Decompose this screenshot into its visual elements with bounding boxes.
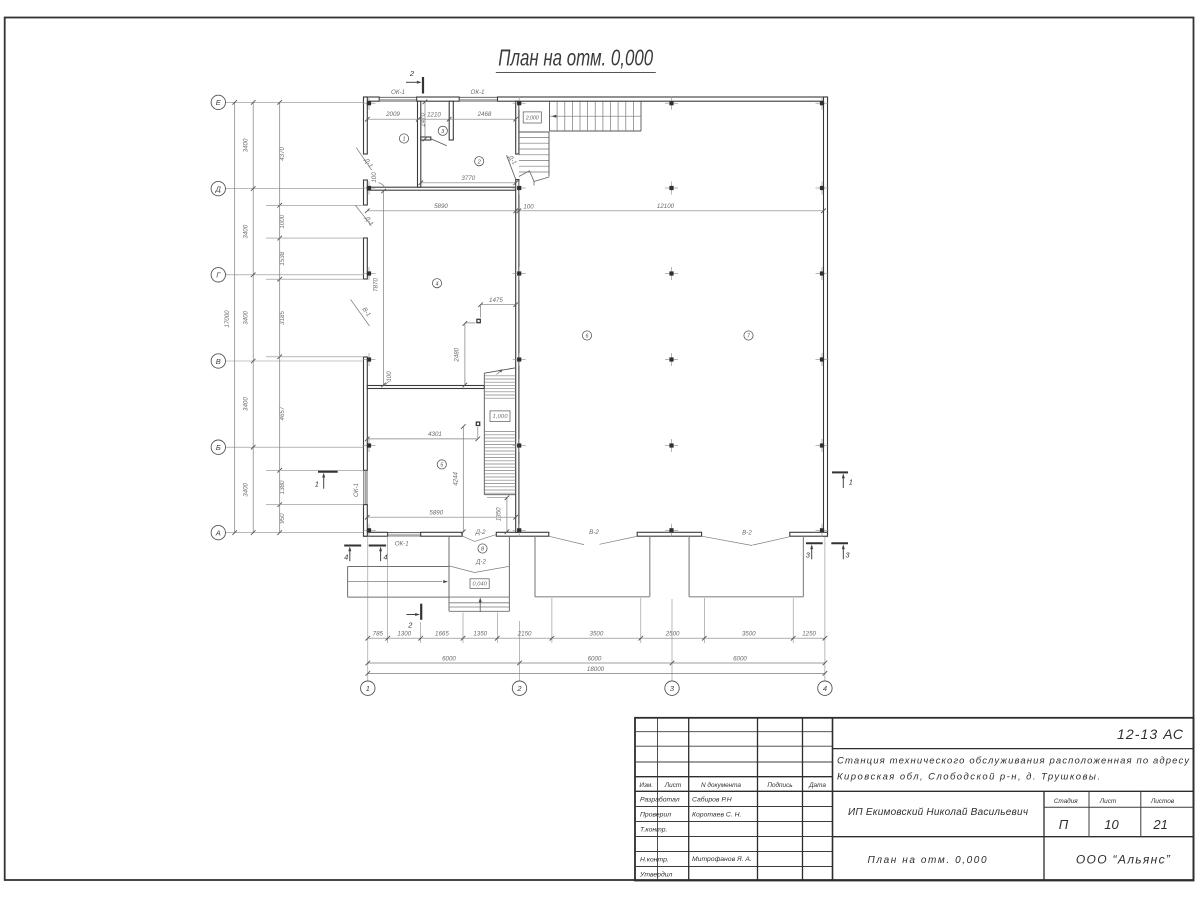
svg-text:1665: 1665 xyxy=(435,631,449,638)
svg-text:В-2: В-2 xyxy=(742,530,752,537)
svg-text:ОК-1: ОК-1 xyxy=(353,483,360,497)
svg-text:21: 21 xyxy=(1152,817,1167,832)
svg-text:ИП Екимовский Николай Васильев: ИП Екимовский Николай Васильевич xyxy=(848,807,1028,818)
svg-text:2: 2 xyxy=(477,159,481,165)
svg-text:100: 100 xyxy=(523,203,534,210)
svg-text:4: 4 xyxy=(823,684,827,693)
svg-text:N документа: N документа xyxy=(701,781,741,789)
svg-text:1: 1 xyxy=(403,137,406,143)
svg-text:Д: Д xyxy=(215,184,222,193)
svg-text:6000: 6000 xyxy=(588,655,602,662)
svg-text:2150: 2150 xyxy=(517,631,532,638)
svg-text:Утвердил: Утвердил xyxy=(639,871,673,879)
svg-text:4: 4 xyxy=(344,553,348,562)
svg-text:Д-2: Д-2 xyxy=(475,558,486,565)
svg-text:1,000: 1,000 xyxy=(493,414,509,420)
svg-text:1470: 1470 xyxy=(419,113,426,127)
svg-text:4370: 4370 xyxy=(279,146,286,160)
svg-text:7870: 7870 xyxy=(373,278,380,292)
svg-text:1538: 1538 xyxy=(279,251,286,265)
svg-text:3400: 3400 xyxy=(243,310,250,324)
svg-text:4: 4 xyxy=(436,281,439,287)
svg-text:Дата: Дата xyxy=(808,782,826,789)
svg-text:ОК-1: ОК-1 xyxy=(391,89,405,96)
svg-text:Проверил: Проверил xyxy=(640,812,671,819)
svg-text:6: 6 xyxy=(586,334,589,340)
svg-text:6000: 6000 xyxy=(442,655,456,662)
svg-text:3500: 3500 xyxy=(742,631,756,638)
svg-text:Разработал: Разработал xyxy=(640,796,680,804)
svg-text:Т.контр.: Т.контр. xyxy=(640,827,668,834)
svg-text:Листов: Листов xyxy=(1150,798,1175,805)
svg-text:3400: 3400 xyxy=(243,138,250,152)
svg-text:5890: 5890 xyxy=(429,510,443,517)
svg-text:Подпись: Подпись xyxy=(767,781,792,789)
svg-text:100: 100 xyxy=(371,172,378,183)
svg-text:12-13 АС: 12-13 АС xyxy=(1117,726,1184,742)
svg-text:4301: 4301 xyxy=(428,431,442,438)
svg-text:2,000: 2,000 xyxy=(525,115,540,121)
svg-text:Кировская обл, Слободской р-н,: Кировская обл, Слободской р-н, д. Трушко… xyxy=(837,772,1100,783)
svg-text:18000: 18000 xyxy=(587,666,605,673)
svg-text:3: 3 xyxy=(441,129,444,135)
svg-text:2480: 2480 xyxy=(454,347,461,362)
svg-text:Лист: Лист xyxy=(664,782,682,789)
svg-text:Н.контр.: Н.контр. xyxy=(640,857,669,864)
svg-text:1: 1 xyxy=(366,684,370,693)
svg-text:3400: 3400 xyxy=(243,397,250,411)
svg-text:В: В xyxy=(216,357,221,366)
svg-text:План на отм. 0,000: План на отм. 0,000 xyxy=(498,46,653,71)
svg-text:Изм.: Изм. xyxy=(639,782,653,789)
svg-text:В-2: В-2 xyxy=(589,529,599,536)
svg-text:10: 10 xyxy=(1104,817,1119,832)
svg-text:1475: 1475 xyxy=(489,297,503,304)
svg-text:1250: 1250 xyxy=(802,631,816,638)
svg-text:3770: 3770 xyxy=(461,175,475,182)
svg-text:785: 785 xyxy=(373,631,384,638)
svg-text:А: А xyxy=(215,528,221,537)
svg-text:3400: 3400 xyxy=(243,482,250,496)
svg-text:4: 4 xyxy=(383,553,387,562)
svg-text:1380: 1380 xyxy=(279,480,286,494)
svg-text:П: П xyxy=(1059,817,1069,832)
svg-text:12100: 12100 xyxy=(657,203,675,210)
svg-text:8: 8 xyxy=(481,547,484,553)
svg-text:100: 100 xyxy=(386,371,393,382)
svg-text:Митрофанов Я. А.: Митрофанов Я. А. xyxy=(692,856,752,863)
svg-text:4244: 4244 xyxy=(453,471,460,485)
svg-text:Стадия: Стадия xyxy=(1054,797,1079,805)
svg-text:1350: 1350 xyxy=(473,631,487,638)
svg-text:Лист: Лист xyxy=(1099,798,1117,805)
svg-text:950: 950 xyxy=(279,513,286,524)
svg-text:2500: 2500 xyxy=(665,631,680,638)
svg-text:6000: 6000 xyxy=(733,655,747,662)
svg-text:2: 2 xyxy=(516,684,522,693)
svg-text:1: 1 xyxy=(315,480,319,489)
svg-text:17000: 17000 xyxy=(224,310,231,328)
svg-text:План на отм. 0,000: План на отм. 0,000 xyxy=(868,855,987,866)
svg-text:2009: 2009 xyxy=(385,111,400,118)
svg-text:1350: 1350 xyxy=(496,507,503,521)
svg-text:3500: 3500 xyxy=(590,631,604,638)
svg-text:Б: Б xyxy=(216,443,221,452)
svg-text:4657: 4657 xyxy=(279,406,286,420)
svg-text:ООО “Альянс”: ООО “Альянс” xyxy=(1076,853,1171,867)
svg-text:2: 2 xyxy=(409,69,415,78)
svg-text:Станция технического обслужива: Станция технического обслуживания распол… xyxy=(837,756,1190,767)
svg-text:3400: 3400 xyxy=(243,224,250,238)
svg-text:ОК-1: ОК-1 xyxy=(395,540,409,547)
svg-text:1210: 1210 xyxy=(427,111,441,118)
svg-text:ОК-1: ОК-1 xyxy=(471,89,485,96)
svg-text:1000: 1000 xyxy=(279,214,286,228)
svg-text:Сабиров Р.Н: Сабиров Р.Н xyxy=(692,796,732,804)
svg-text:3185: 3185 xyxy=(279,311,286,325)
svg-text:Д-2: Д-2 xyxy=(475,529,486,536)
svg-text:0,040: 0,040 xyxy=(473,582,488,588)
svg-text:5890: 5890 xyxy=(434,203,448,210)
svg-text:Коротаев С. Н.: Коротаев С. Н. xyxy=(692,812,742,819)
svg-text:1300: 1300 xyxy=(397,631,411,638)
svg-text:1: 1 xyxy=(849,478,853,487)
svg-text:2468: 2468 xyxy=(477,111,492,118)
svg-text:2: 2 xyxy=(407,621,413,630)
